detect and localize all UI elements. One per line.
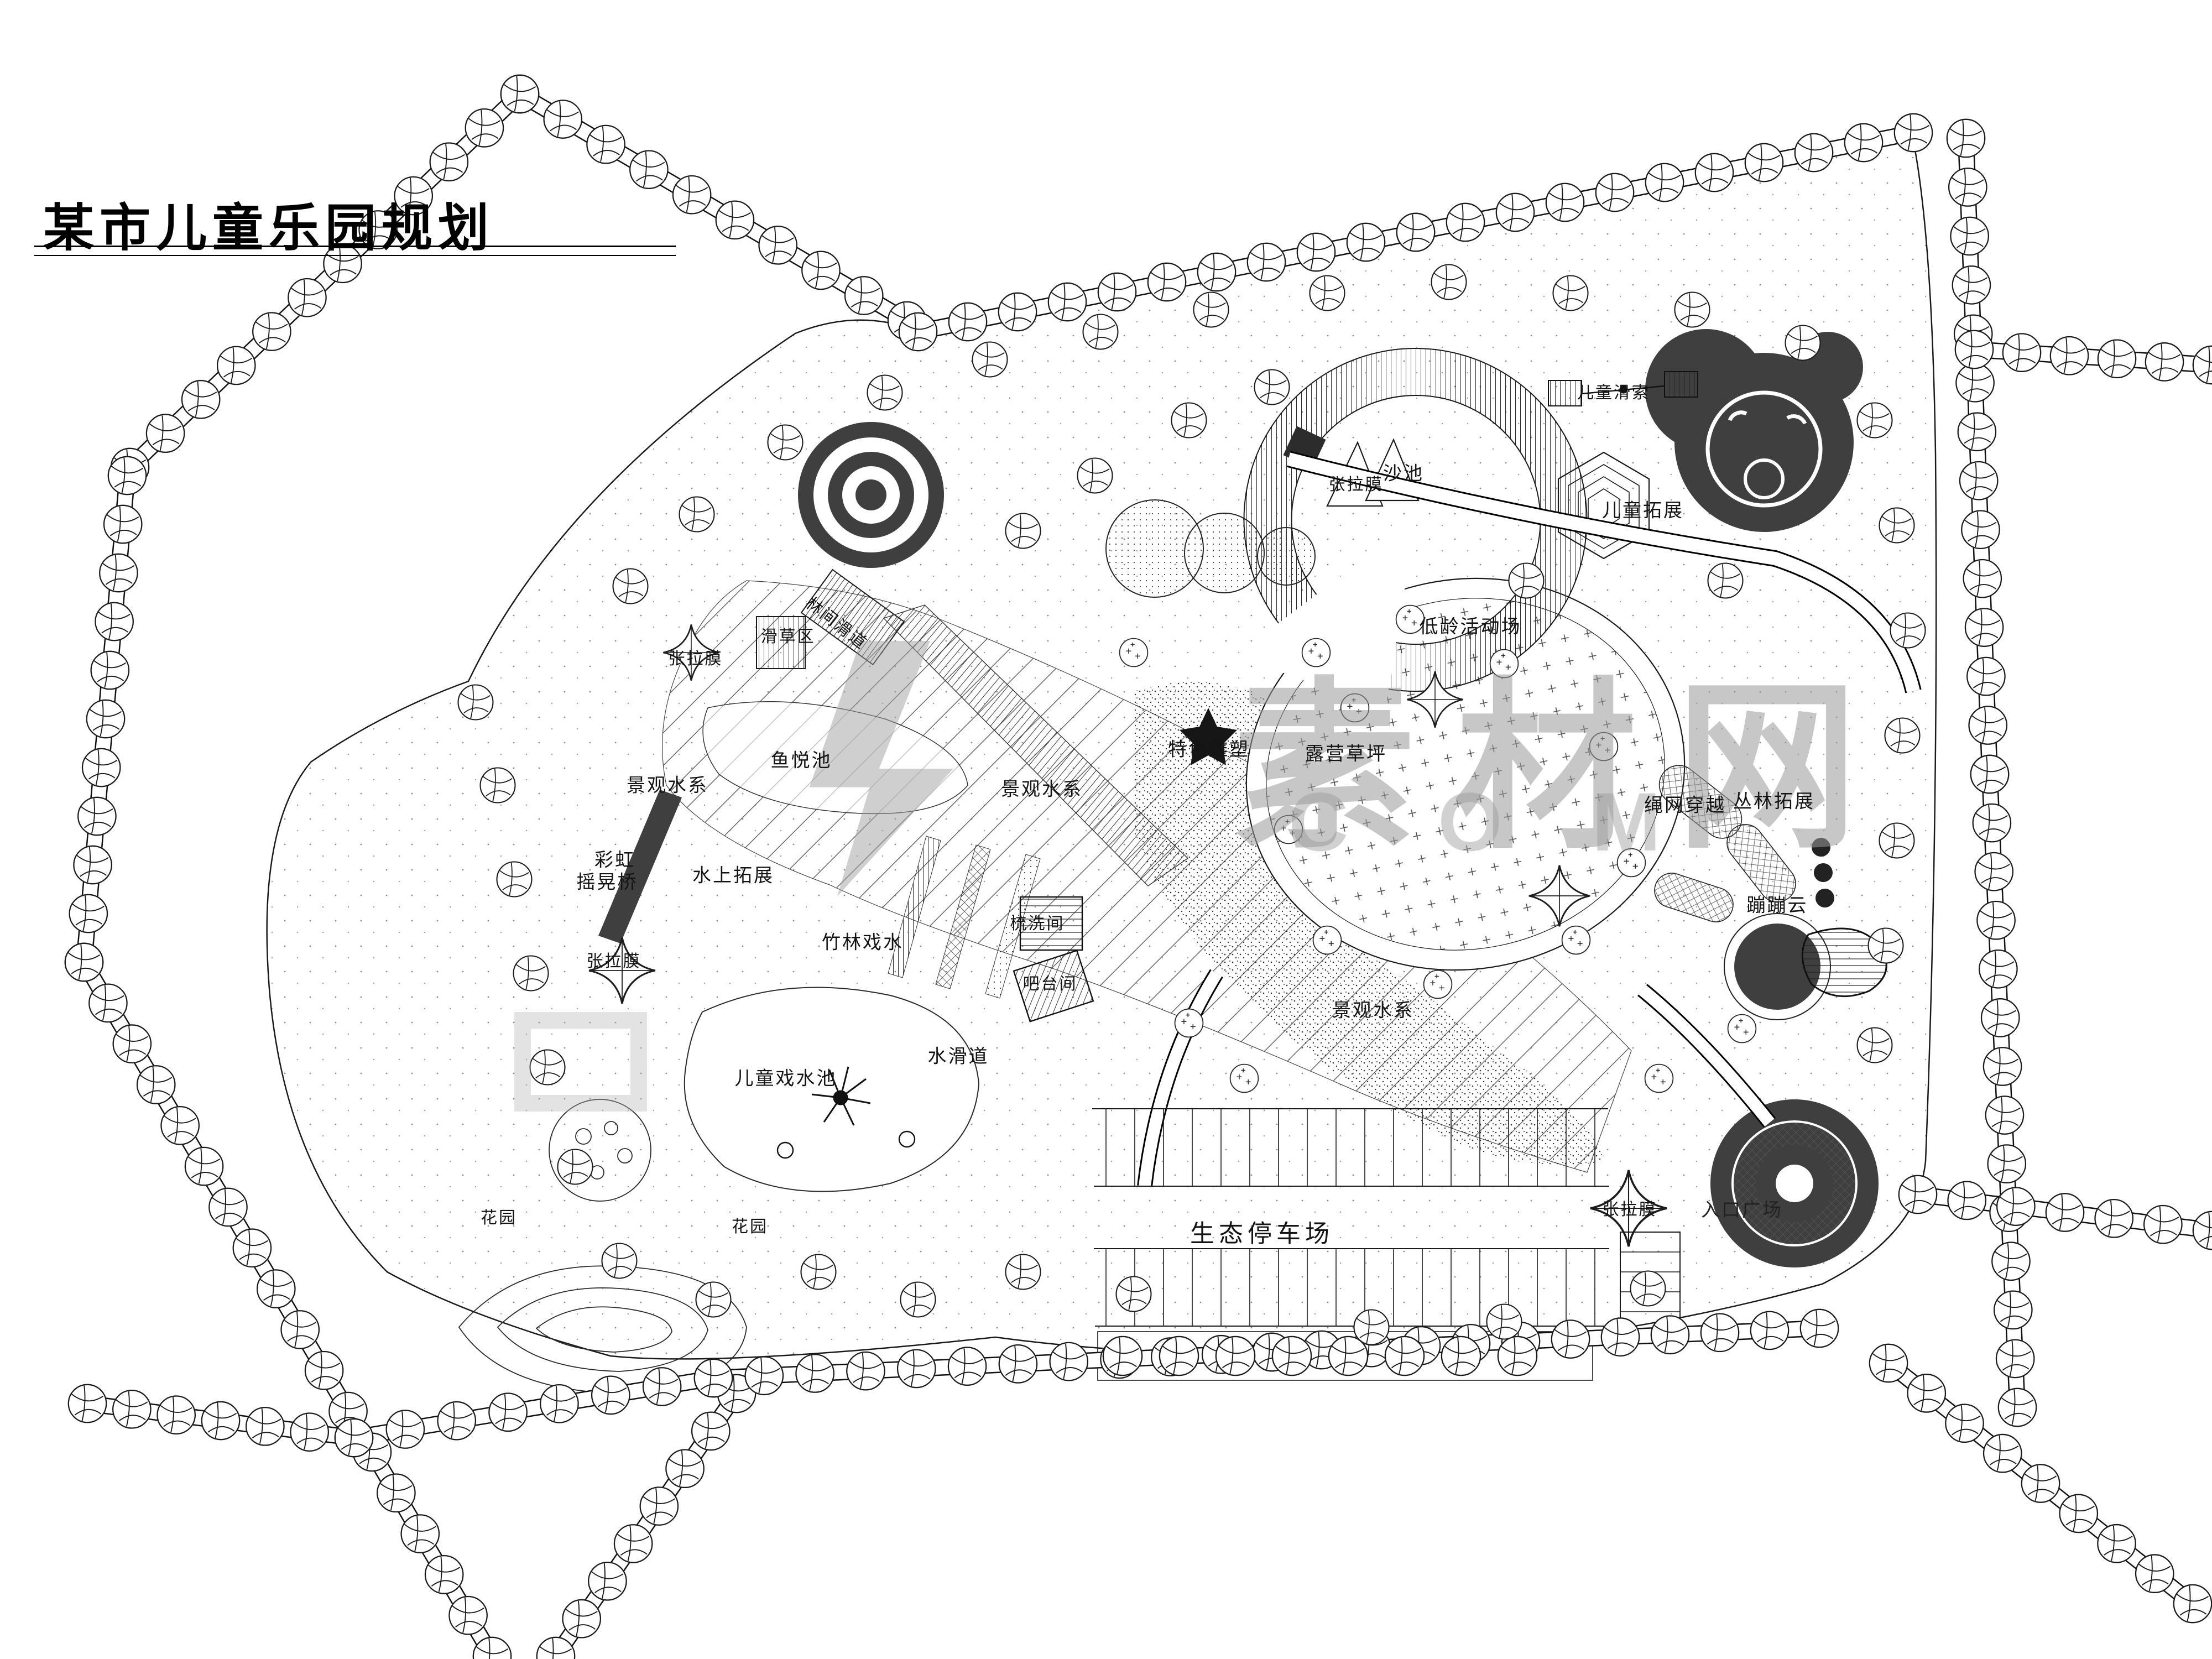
tree-icon <box>680 497 714 532</box>
tree-icon <box>113 1025 151 1062</box>
tree-icon <box>2060 1495 2098 1532</box>
label-membrane-3: 张拉膜 <box>1603 1201 1657 1220</box>
tree-icon <box>1947 119 1985 157</box>
tree-icon <box>1908 1374 1945 1412</box>
tree-icon <box>1986 1096 2023 1134</box>
tree-icon <box>1120 639 1148 667</box>
tree-icon <box>1297 233 1335 271</box>
tree-icon <box>1695 154 1733 191</box>
tree-icon <box>614 1525 652 1562</box>
tree-icon <box>1708 564 1743 598</box>
tree-icon <box>1006 1255 1041 1290</box>
tree-icon <box>1275 816 1303 844</box>
tree-icon <box>613 569 648 604</box>
tree-icon <box>425 1556 463 1593</box>
tree-icon <box>1083 315 1118 349</box>
tree-icon <box>1048 283 1086 321</box>
tree-icon <box>1198 253 1235 291</box>
tree-icon <box>113 1390 150 1428</box>
label-eco-parking: 生态停车场 <box>1190 1220 1334 1249</box>
tree-icon <box>1447 204 1484 241</box>
tree-icon <box>1964 560 2001 597</box>
tree-icon <box>253 312 290 350</box>
tree-icon <box>1230 1065 1259 1093</box>
tree-icon <box>898 1350 935 1387</box>
tree-icon <box>1546 184 1584 221</box>
tree-icon <box>673 176 711 213</box>
tree-icon <box>2003 333 2041 371</box>
tree-icon <box>82 749 120 786</box>
tree-icon <box>696 1282 731 1317</box>
tree-icon <box>1354 1310 1389 1345</box>
tree-icon <box>901 1282 936 1317</box>
tree-icon <box>2098 1525 2135 1562</box>
tree-icon <box>108 457 146 494</box>
label-toddler-area: 低龄活动场 <box>1420 616 1522 638</box>
tree-icon <box>1971 755 2008 793</box>
tree-icon <box>1869 928 1903 963</box>
tree-icon <box>1891 613 1926 648</box>
tree-icon <box>1858 1028 1892 1063</box>
tree-icon <box>1977 901 2015 939</box>
tree-icon <box>1795 134 1833 171</box>
title-underline <box>34 246 676 256</box>
tree-icon <box>802 252 839 289</box>
tree-icon <box>91 651 129 689</box>
tree-icon <box>1984 1434 2021 1472</box>
tree-icon <box>1950 217 1988 255</box>
label-kids-zipline: 儿童滑索 <box>1577 384 1650 403</box>
tree-icon <box>1751 1312 1788 1349</box>
tree-icon <box>74 846 111 884</box>
label-camping-lawn: 露营草坪 <box>1305 743 1387 765</box>
label-fish-pond: 鱼悦池 <box>771 750 832 771</box>
plan-canvas: 素材网 C O M 某市儿童乐园规划 滑草区 林间滑道 张拉膜 鱼悦池 景观水系… <box>0 0 2212 1659</box>
tree-icon <box>666 1450 703 1488</box>
tree-icon <box>1965 608 2003 646</box>
tree-icon <box>999 293 1036 331</box>
entrance-plaza-rings <box>1710 1099 1879 1267</box>
tree-icon <box>563 1600 601 1637</box>
tree-icon <box>1006 514 1041 549</box>
tree-icon <box>999 1345 1037 1383</box>
tree-icon <box>1248 243 1285 281</box>
tree-icon <box>290 1413 328 1451</box>
tree-icon <box>630 150 667 188</box>
tree-icon <box>847 1352 884 1390</box>
tree-icon <box>745 1357 783 1395</box>
tree-icon <box>100 554 137 592</box>
tree-icon <box>147 414 184 452</box>
tree-icon <box>2174 1585 2211 1623</box>
tree-icon <box>2193 1212 2212 1249</box>
tree-icon <box>1975 853 2012 890</box>
label-sand-pit: 沙池 <box>1383 463 1424 484</box>
tree-icon <box>948 1347 986 1385</box>
tree-icon <box>202 1402 239 1439</box>
tree-icon <box>78 797 116 835</box>
tree-icon <box>335 1419 373 1457</box>
tree-icon <box>209 1188 247 1226</box>
tree-icon <box>1870 1344 1907 1382</box>
tree-icon <box>544 100 582 138</box>
tree-icon <box>95 603 133 640</box>
tree-icon <box>1562 926 1590 954</box>
tree-icon <box>2046 1193 2084 1231</box>
tree-icon <box>1786 326 1820 361</box>
tree-icon <box>1675 293 1710 327</box>
tree-icon <box>1590 733 1618 761</box>
label-rope-net: 绳网穿越 <box>1644 795 1726 816</box>
label-kids-pool: 儿童戏水池 <box>735 1068 837 1089</box>
tree-icon <box>1960 462 1997 499</box>
tree-icon <box>1490 650 1519 678</box>
tree-icon <box>1988 1145 2026 1182</box>
tree-icon <box>1050 1343 1088 1380</box>
label-bar-kiosk: 吧台间 <box>1023 975 1078 994</box>
tree-icon <box>1955 331 1993 368</box>
tree-icon <box>2146 343 2183 380</box>
tree-icon <box>89 984 127 1022</box>
tree-icon <box>87 700 124 738</box>
tree-icon <box>70 895 107 932</box>
tree-icon <box>1999 1389 2036 1426</box>
tree-icon <box>1969 706 2006 744</box>
tree-icon <box>1956 364 1994 401</box>
tree-icon <box>497 862 532 897</box>
tree-icon <box>1618 849 1646 877</box>
tree-icon <box>587 126 624 163</box>
tree-icon <box>1880 508 1914 543</box>
tree-icon <box>973 342 1008 377</box>
tree-icon <box>768 425 803 460</box>
label-grass-slide: 滑草区 <box>761 628 816 647</box>
label-membrane-4: 张拉膜 <box>1329 476 1384 495</box>
tree-icon <box>1885 718 1920 753</box>
tree-icon <box>1552 1320 1589 1358</box>
label-rainbow-bridge-1: 彩虹 <box>594 849 635 871</box>
label-rainbow-bridge-2: 摇晃桥 <box>577 872 638 893</box>
tree-icon <box>1255 370 1290 405</box>
tree-icon <box>449 1597 487 1634</box>
tree-icon <box>387 1410 424 1448</box>
tree-icon <box>1498 1337 1537 1375</box>
label-waterscape-2: 景观水系 <box>1001 779 1083 800</box>
tree-icon <box>1496 194 1534 231</box>
tree-icon <box>161 1107 199 1144</box>
tree-icon <box>1341 694 1369 722</box>
tree-icon <box>401 1515 439 1552</box>
tree-icon <box>1945 1405 1983 1442</box>
tree-icon <box>1996 1340 2034 1378</box>
tree-icon <box>1801 1310 1838 1347</box>
tree-icon <box>1424 971 1452 999</box>
tree-icon <box>640 1487 678 1525</box>
label-membrane-1: 张拉膜 <box>669 650 723 669</box>
tree-icon <box>2136 1554 2173 1592</box>
tree-icon <box>1302 639 1331 667</box>
tree-icon <box>104 505 142 543</box>
tree-icon <box>1961 510 1999 548</box>
tree-icon <box>1272 1337 1311 1375</box>
label-sculpture: 特色雕塑 <box>1168 739 1250 760</box>
tree-icon <box>2022 1464 2059 1502</box>
tree-icon <box>2098 340 2136 378</box>
tree-icon <box>1310 276 1345 311</box>
tree-icon <box>899 313 937 351</box>
tree-icon <box>1487 1305 1522 1339</box>
tree-icon <box>796 1354 833 1392</box>
tree-icon <box>1992 1243 2030 1280</box>
tree-icon <box>1981 999 2019 1036</box>
tree-icon <box>501 75 539 113</box>
tree-icon <box>1979 950 2017 988</box>
label-wash-room: 梳洗间 <box>1010 915 1065 934</box>
tree-icon <box>1601 1318 1639 1355</box>
tree-icon <box>1172 403 1207 438</box>
tree-icon <box>458 685 493 720</box>
tree-icon <box>438 1402 476 1439</box>
tree-icon <box>1078 458 1113 493</box>
label-garden-2: 花园 <box>732 1218 768 1237</box>
label-bamboo-water: 竹林戏水 <box>822 932 904 953</box>
tree-icon <box>695 1359 732 1397</box>
spiral-plaza <box>798 422 944 568</box>
label-membrane-2: 张拉膜 <box>587 952 641 972</box>
tree-icon <box>1313 926 1342 954</box>
tree-icon <box>1701 1314 1739 1352</box>
tree-icon <box>1845 124 1882 161</box>
tree-icon <box>759 226 796 264</box>
tree-icon <box>1994 1291 2032 1329</box>
tree-icon <box>1858 403 1892 438</box>
label-bouncing-cloud: 蹦蹦云 <box>1747 895 1808 916</box>
tree-icon <box>489 1394 526 1431</box>
tree-icon <box>1899 1176 1937 1213</box>
tree-icon <box>1117 1277 1151 1312</box>
tree-icon <box>1442 1337 1480 1375</box>
tree-icon <box>2051 337 2088 374</box>
tree-icon <box>305 1352 343 1389</box>
tree-icon <box>1160 1337 1198 1375</box>
tree-icon <box>868 375 902 410</box>
tree-icon <box>558 1150 593 1185</box>
tree-icon <box>182 380 220 418</box>
label-entrance-plaza: 入口广场 <box>1701 1199 1783 1221</box>
tree-icon <box>1651 1316 1689 1354</box>
tree-icon <box>1948 1182 1985 1219</box>
tree-icon <box>845 276 883 314</box>
tree-icon <box>257 1270 295 1307</box>
tree-icon <box>281 1311 319 1348</box>
tree-icon <box>233 1229 271 1267</box>
tree-icon <box>949 303 987 341</box>
tree-icon <box>1509 564 1544 598</box>
label-jungle-expand: 丛林拓展 <box>1733 791 1815 812</box>
label-garden-1: 花园 <box>481 1209 517 1228</box>
tree-icon <box>1098 273 1136 311</box>
tree-icon <box>1631 1271 1666 1306</box>
tree-icon <box>1880 823 1914 858</box>
watermark-logo-small <box>498 990 664 1134</box>
tree-icon <box>217 347 255 384</box>
tree-icon <box>1553 276 1588 311</box>
tree-icon <box>1432 265 1467 300</box>
tree-icon <box>466 109 503 147</box>
tree-icon <box>1973 804 2011 842</box>
label-waterscape-1: 景观水系 <box>627 775 708 796</box>
tree-icon <box>1958 413 1996 451</box>
tree-icon <box>1728 1015 1756 1043</box>
tree-icon <box>1385 1337 1424 1375</box>
tree-icon <box>1646 164 1683 201</box>
tree-icon <box>514 956 549 991</box>
tree-icon <box>1103 1337 1142 1375</box>
tree-icon <box>185 1147 223 1185</box>
tree-icon <box>2144 1206 2182 1243</box>
tree-icon <box>2095 1199 2132 1237</box>
tree-icon <box>1953 266 1990 304</box>
tree-icon <box>1596 174 1634 211</box>
tree-icon <box>592 1376 629 1414</box>
tree-icon <box>377 1474 415 1512</box>
tree-icon <box>602 1244 637 1279</box>
tree-icon <box>1194 293 1229 327</box>
tree-icon <box>1895 114 1932 152</box>
tree-icon <box>1997 1187 2034 1225</box>
tree-icon <box>246 1407 284 1445</box>
tree-icon <box>1967 658 2005 695</box>
label-water-slide: 水滑道 <box>928 1046 989 1067</box>
tree-icon <box>1148 263 1186 301</box>
label-water-challenge: 水上拓展 <box>692 865 774 886</box>
label-waterscape-3: 景观水系 <box>1332 1000 1414 1021</box>
tree-icon <box>481 768 515 803</box>
tree-icon <box>1397 213 1434 251</box>
tree-icon <box>692 1412 729 1450</box>
label-kids-expand: 儿童拓展 <box>1602 500 1684 521</box>
tree-icon <box>69 1385 106 1422</box>
tree-icon <box>1949 168 1986 206</box>
tree-icon <box>716 201 754 239</box>
tree-icon <box>643 1368 681 1405</box>
tree-icon <box>157 1396 195 1433</box>
tree-icon <box>137 1066 175 1103</box>
tree-icon <box>2193 346 2212 384</box>
tree-icon <box>1347 223 1385 261</box>
tree-icon <box>1175 1009 1203 1037</box>
tree-icon <box>1745 144 1783 181</box>
tree-icon <box>1216 1337 1255 1375</box>
tree-icon <box>65 943 103 981</box>
tree-icon <box>540 1385 578 1422</box>
tree-icon <box>288 279 326 316</box>
tree-icon <box>1984 1047 2021 1085</box>
tree-icon <box>1645 1065 1673 1093</box>
tree-icon <box>588 1562 626 1600</box>
tree-icon <box>801 1255 836 1290</box>
tree-icon <box>430 143 468 181</box>
